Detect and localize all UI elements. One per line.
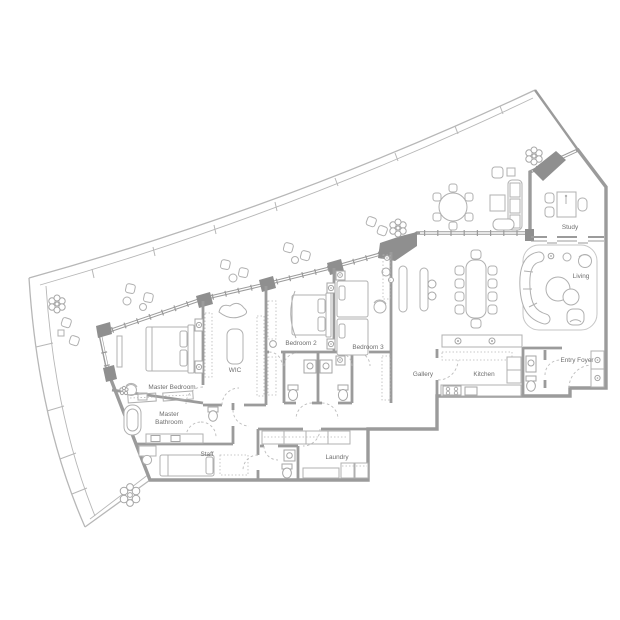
plant-icon [120,386,128,394]
room-label-study: Study [562,224,579,231]
room-label-master-bathroom-line2: Bathroom [155,419,183,426]
room-label-living: Living [573,273,590,280]
side-table-icon [58,330,64,336]
vase-icon [270,341,277,348]
sink-icon [171,436,180,442]
side-table-icon [229,274,237,282]
pillow-icon [206,457,213,474]
counter-icon [303,468,339,478]
side-table-icon [563,253,571,261]
dining-chair-icon [455,305,464,314]
guest-chair-icon [545,207,554,217]
chair-icon [283,242,294,253]
stool-icon [428,292,436,300]
headboard-icon [326,293,331,337]
dining-chair-icon [488,279,497,288]
floorplan-canvas: Master Bedroom WIC Bedroom 2 Bedroom 3 M… [0,0,620,620]
stool-icon [389,278,394,283]
room-label-gallery: Gallery [413,371,434,378]
side-table-icon [140,304,147,311]
console-table-icon [420,268,428,311]
sink-icon [465,387,477,395]
room-label-master-bathroom-line1: Master [159,411,179,418]
chair-icon [300,250,311,261]
pillow-icon [339,286,345,300]
plant-icon [49,295,65,313]
dining-chair-icon [471,250,481,259]
toilet-icon [338,385,348,401]
desk-chair-icon [578,198,587,211]
dining-chair-icon [488,305,497,314]
plant-icon [120,484,140,507]
console-table-icon [399,266,407,312]
chair-icon [142,455,151,464]
dining-chair-icon [488,292,497,301]
dining-chair-icon [455,292,464,301]
chair-icon [143,292,154,303]
island-counter-icon [442,335,522,347]
pillow-icon [180,350,187,366]
chair-icon [220,259,231,270]
plant-icon [390,219,406,237]
dining-chair-icon [455,279,464,288]
sink-icon [151,436,160,442]
room-label-master-bedroom: Master Bedroom [148,384,195,391]
room-label-staff: Staff [200,451,213,458]
coffee-table-icon [563,289,579,305]
desk-icon [139,446,156,456]
pillow-icon [318,299,325,313]
washer-icon [341,463,354,478]
floorplan-svg: Master Bedroom WIC Bedroom 2 Bedroom 3 M… [0,0,620,620]
dresser-icon [117,336,122,367]
dining-chair-icon [455,266,464,275]
dining-chair-icon [471,319,481,328]
chair-icon [125,283,136,294]
headboard-icon [188,325,194,373]
dining-chair-icon [488,266,497,275]
pillow-icon [318,317,325,331]
toilet-icon [208,407,218,421]
lounger-icon [493,219,514,230]
room-label-wic: WIC [229,367,242,374]
coffee-table-icon [490,195,505,211]
room-label-kitchen: Kitchen [473,371,495,378]
pillow-icon [339,324,345,338]
plant-icon [526,147,542,165]
side-table-icon [292,257,299,264]
stool-icon [428,280,436,288]
toilet-icon [282,464,292,478]
side-table-icon [507,168,515,176]
room-label-laundry: Laundry [325,454,349,461]
room-label-bedroom-3: Bedroom 3 [352,344,384,351]
dryer-icon [355,463,368,478]
side-table-icon [123,297,131,305]
armchair-icon [374,301,386,313]
toilet-icon [288,385,298,401]
pillow-icon [180,331,187,347]
chair-icon [238,267,249,278]
pouf-icon [492,167,503,178]
island-bench-icon [227,329,243,364]
armchair-icon [567,309,584,325]
room-label-entry-foyer: Entry Foyer [560,357,594,364]
guest-chair-icon [545,193,554,203]
toilet-icon [526,376,536,391]
stove-icon [443,386,461,395]
room-label-bedroom-2: Bedroom 2 [285,340,317,347]
dining-table-icon [466,260,486,318]
